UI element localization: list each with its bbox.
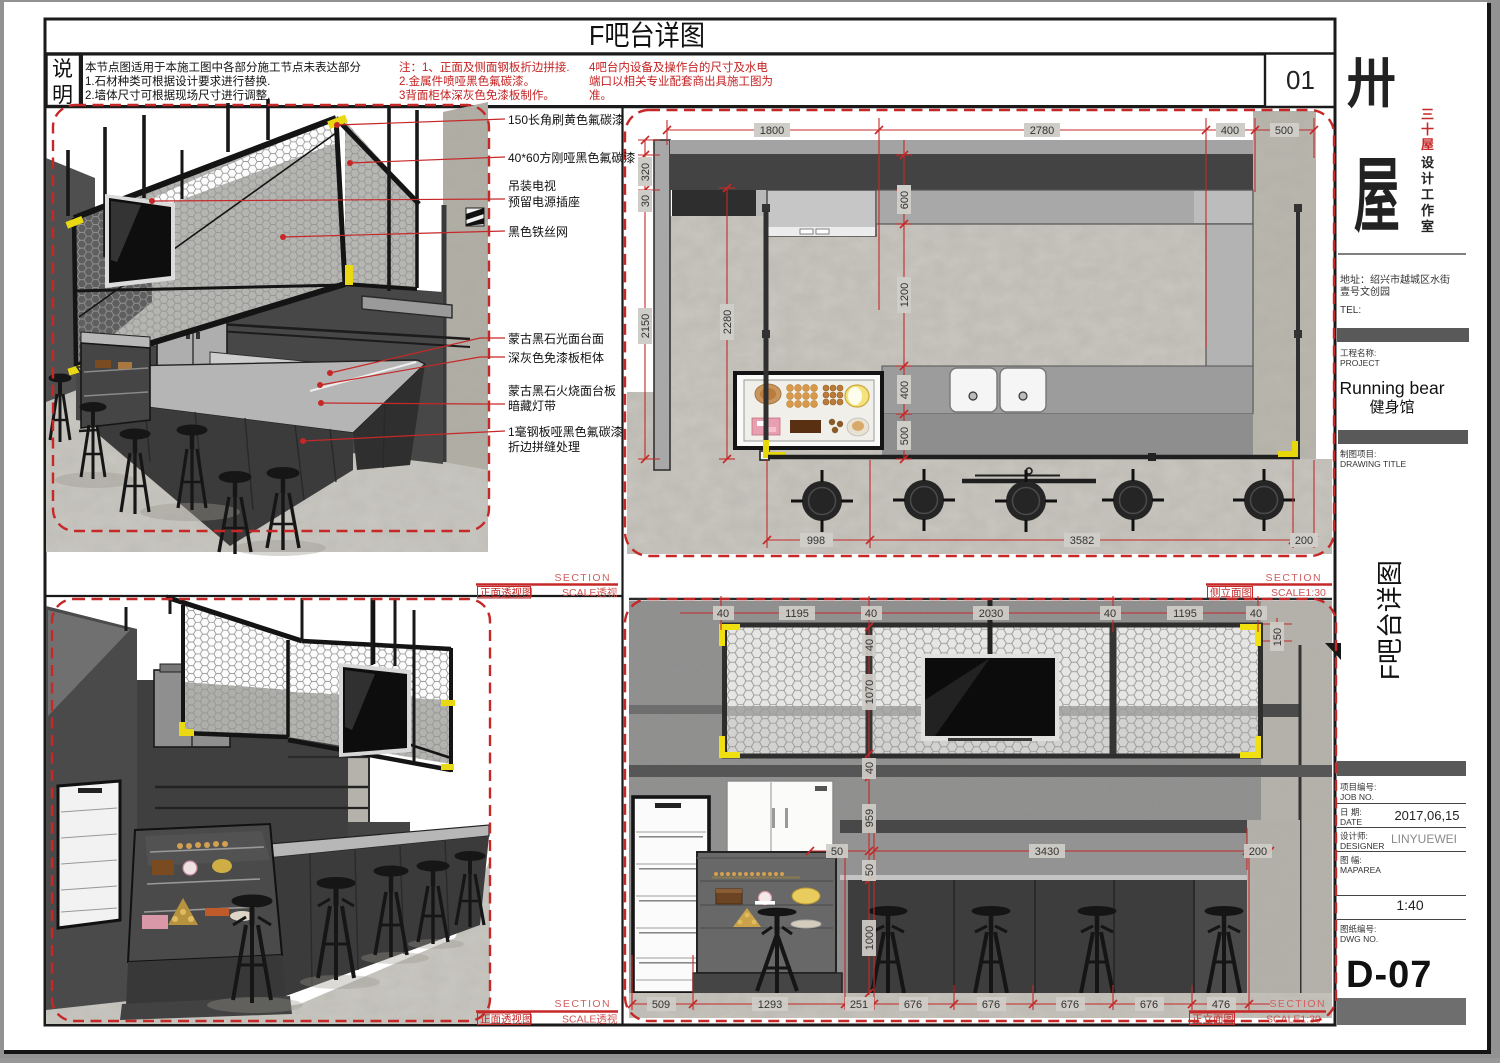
svg-text:509: 509	[652, 999, 670, 1011]
svg-text:SECTION: SECTION	[555, 572, 611, 584]
svg-text:图纸编号:: 图纸编号:	[1340, 924, 1376, 934]
svg-text:PROJECT: PROJECT	[1340, 358, 1380, 368]
svg-text:端口以相关专业配套商出具施工图为: 端口以相关专业配套商出具施工图为	[589, 74, 773, 88]
svg-text:侧立面图: 侧立面图	[1210, 586, 1252, 599]
svg-text:SCALE1:30: SCALE1:30	[1266, 1014, 1321, 1026]
svg-text:吊装电视: 吊装电视	[508, 178, 556, 193]
svg-text:DRAWING TITLE: DRAWING TITLE	[1340, 459, 1406, 469]
svg-text:251: 251	[850, 999, 868, 1011]
svg-text:1200: 1200	[899, 283, 911, 307]
svg-text:健身馆: 健身馆	[1369, 399, 1414, 416]
svg-text:明: 明	[52, 84, 73, 107]
svg-text:50: 50	[864, 864, 876, 876]
svg-text:说: 说	[52, 58, 73, 81]
svg-text:SCALE透视: SCALE透视	[562, 586, 618, 599]
svg-text:SCALE1:30: SCALE1:30	[1271, 587, 1326, 599]
svg-text:F吧台详图: F吧台详图	[589, 20, 705, 51]
svg-text:正面透视图: 正面透视图	[480, 1013, 533, 1026]
svg-text:项目编号:: 项目编号:	[1340, 782, 1376, 792]
svg-text:SECTION: SECTION	[1270, 998, 1326, 1010]
svg-text:959: 959	[864, 809, 876, 827]
svg-text:DATE: DATE	[1340, 817, 1362, 827]
svg-text:室: 室	[1421, 219, 1434, 234]
svg-text:3582: 3582	[1070, 535, 1094, 547]
svg-text:图 幅:: 图 幅:	[1340, 855, 1362, 865]
svg-text:1195: 1195	[785, 608, 809, 620]
svg-text:50: 50	[831, 846, 843, 858]
svg-text:F吧台详图: F吧台详图	[1375, 560, 1405, 680]
svg-text:2780: 2780	[1030, 125, 1054, 137]
svg-text:壹号文创园: 壹号文创园	[1340, 285, 1390, 298]
svg-text:注：1、正面及侧面钢板折边拼接.: 注：1、正面及侧面钢板折边拼接.	[399, 60, 570, 74]
svg-text:320: 320	[640, 163, 652, 181]
svg-text:D-07: D-07	[1346, 954, 1432, 996]
svg-text:2017,06,15: 2017,06,15	[1394, 808, 1459, 823]
svg-text:地址：绍兴市越城区水街: 地址：绍兴市越城区水街	[1340, 273, 1450, 286]
svg-text:JOB NO.: JOB NO.	[1340, 792, 1374, 802]
svg-text:1:40: 1:40	[1396, 897, 1423, 913]
svg-text:屋: 屋	[1421, 137, 1434, 152]
svg-text:屋: 屋	[1354, 151, 1400, 242]
svg-text:准。: 准。	[589, 89, 612, 102]
svg-text:1195: 1195	[1173, 608, 1197, 620]
svg-text:工: 工	[1421, 187, 1434, 202]
svg-text:三: 三	[1421, 107, 1434, 122]
svg-text:蒙古黑石光面台面: 蒙古黑石光面台面	[508, 331, 604, 346]
svg-text:2280: 2280	[722, 310, 734, 334]
svg-text:1800: 1800	[760, 125, 784, 137]
svg-text:400: 400	[1221, 125, 1239, 137]
svg-text:1293: 1293	[758, 999, 782, 1011]
svg-text:作: 作	[1421, 203, 1434, 218]
svg-text:DWG NO.: DWG NO.	[1340, 934, 1378, 944]
svg-text:40: 40	[1250, 608, 1262, 620]
svg-text:676: 676	[904, 999, 922, 1011]
svg-text:40: 40	[865, 608, 877, 620]
svg-text:500: 500	[1275, 125, 1293, 137]
svg-text:DESIGNER: DESIGNER	[1340, 841, 1384, 851]
svg-text:预留电源插座: 预留电源插座	[508, 194, 580, 209]
svg-text:本节点图适用于本施工图中各部分施工节点未表达部分: 本节点图适用于本施工图中各部分施工节点未表达部分	[85, 60, 361, 74]
svg-text:计: 计	[1421, 171, 1434, 186]
svg-text:40: 40	[1104, 608, 1116, 620]
svg-text:150: 150	[1272, 628, 1284, 646]
svg-text:1070: 1070	[864, 680, 876, 704]
svg-text:1000: 1000	[864, 926, 876, 950]
svg-text:MAPAREA: MAPAREA	[1340, 865, 1381, 875]
svg-text:TEL:: TEL:	[1340, 305, 1361, 316]
svg-text:3430: 3430	[1035, 846, 1059, 858]
svg-text:400: 400	[899, 381, 911, 399]
svg-text:1毫钢板哑黑色氟碳漆: 1毫钢板哑黑色氟碳漆	[508, 424, 623, 439]
svg-text:2030: 2030	[979, 608, 1003, 620]
svg-text:设计师:: 设计师:	[1340, 831, 1368, 841]
svg-text:SECTION: SECTION	[1266, 572, 1322, 584]
svg-text:LINYUEWEI: LINYUEWEI	[1391, 832, 1457, 846]
svg-text:正立面图: 正立面图	[1192, 1013, 1234, 1026]
svg-text:676: 676	[1140, 999, 1158, 1011]
svg-text:蒙古黑石火烧面台板: 蒙古黑石火烧面台板	[508, 383, 616, 398]
svg-text:2.墙体尺寸可根据现场尺寸进行调整.: 2.墙体尺寸可根据现场尺寸进行调整.	[85, 88, 270, 102]
svg-text:十: 十	[1421, 122, 1434, 137]
svg-text:SCALE透视: SCALE透视	[562, 1013, 618, 1026]
svg-text:150长角刷黄色氟碳漆: 150长角刷黄色氟碳漆	[508, 113, 624, 127]
svg-text:日 期:: 日 期:	[1340, 807, 1362, 817]
svg-text:Running bear: Running bear	[1339, 378, 1444, 398]
svg-text:500: 500	[899, 427, 911, 445]
svg-text:676: 676	[982, 999, 1000, 1011]
svg-text:40: 40	[864, 639, 876, 651]
svg-text:暗藏灯带: 暗藏灯带	[508, 398, 556, 413]
svg-text:设: 设	[1421, 155, 1435, 170]
svg-text:600: 600	[899, 191, 911, 209]
svg-text:黑色铁丝网: 黑色铁丝网	[508, 225, 568, 239]
svg-text:998: 998	[807, 535, 825, 547]
svg-text:正面透视图: 正面透视图	[480, 586, 533, 599]
svg-text:30: 30	[640, 195, 652, 207]
svg-text:3背面柜体深灰色免漆板制作。: 3背面柜体深灰色免漆板制作。	[399, 88, 555, 102]
svg-text:SECTION: SECTION	[555, 998, 611, 1010]
svg-text:2150: 2150	[640, 314, 652, 338]
svg-text:40: 40	[864, 762, 876, 774]
svg-text:制图项目:: 制图项目:	[1340, 449, 1376, 459]
svg-text:40*60方刚哑黑色氟碳漆: 40*60方刚哑黑色氟碳漆	[508, 150, 635, 165]
svg-text:4吧台内设备及操作台的尺寸及水电: 4吧台内设备及操作台的尺寸及水电	[589, 60, 768, 74]
svg-text:200: 200	[1249, 846, 1267, 858]
svg-text:折边拼缝处理: 折边拼缝处理	[508, 439, 580, 454]
svg-text:40: 40	[717, 608, 729, 620]
svg-text:卅: 卅	[1347, 53, 1396, 114]
svg-text:深灰色免漆板柜体: 深灰色免漆板柜体	[508, 350, 604, 365]
svg-text:676: 676	[1061, 999, 1079, 1011]
svg-text:200: 200	[1295, 535, 1313, 547]
svg-text:工程名称:: 工程名称:	[1340, 348, 1376, 358]
svg-text:1.石材种类可根据设计要求进行替换.: 1.石材种类可根据设计要求进行替换.	[85, 74, 270, 88]
svg-text:476: 476	[1212, 999, 1230, 1011]
svg-text:2.金属件喷哑黑色氟碳漆。: 2.金属件喷哑黑色氟碳漆。	[399, 74, 535, 88]
svg-text:01: 01	[1286, 65, 1315, 95]
